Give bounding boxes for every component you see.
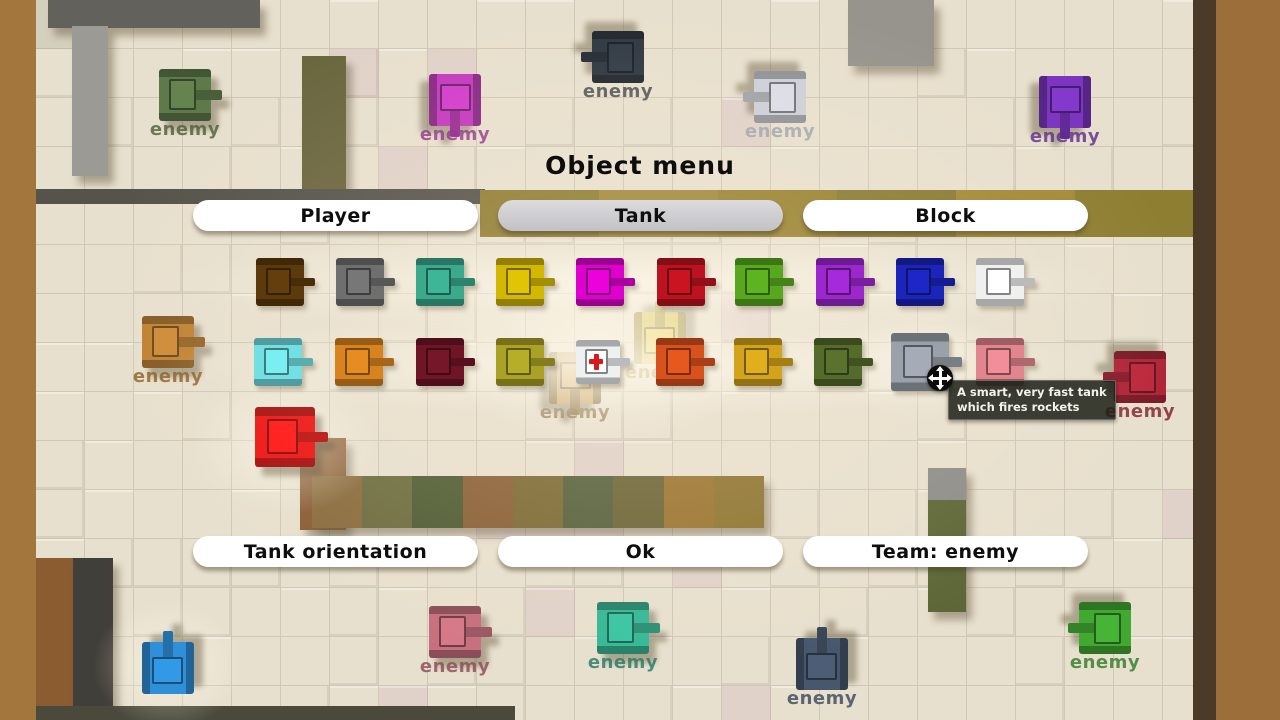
tank-option-orange-red[interactable] [656, 338, 704, 386]
floor-tile [330, 637, 379, 686]
tank-option-teal[interactable] [416, 258, 464, 306]
enemy-team-label: enemy [133, 366, 203, 387]
floor-tile [36, 245, 85, 294]
floor-tile [526, 98, 575, 147]
wall-right-border [1216, 0, 1280, 720]
floor-tile [183, 490, 232, 539]
floor-tile [673, 0, 722, 49]
floor-tile [232, 49, 281, 98]
tank-option-gray[interactable] [336, 258, 384, 306]
tank-option-medic[interactable] [576, 340, 620, 384]
floor-tile [967, 98, 1016, 147]
floor-tile [85, 245, 134, 294]
tank-option-dark-green[interactable] [814, 338, 862, 386]
floor-tile [526, 637, 575, 686]
tank-turret [440, 84, 470, 111]
tank-turret [745, 268, 770, 296]
floor-tile [183, 441, 232, 490]
floor-tile [330, 588, 379, 637]
wall-block [312, 476, 362, 528]
floor-tile [1016, 0, 1065, 49]
floor-tile [1065, 245, 1114, 294]
floor-tile [379, 588, 428, 637]
floor-tile [134, 245, 183, 294]
button-player[interactable]: Player [193, 200, 478, 231]
wall-blocks [312, 476, 764, 528]
tooltip: A smart, very fast tank which fires rock… [948, 380, 1116, 420]
map-tank-slate [796, 638, 848, 690]
floor-tile [722, 686, 771, 720]
wall-block [513, 476, 563, 528]
tank-turret [267, 419, 298, 454]
tank-turret [264, 348, 289, 376]
floor-tile [624, 98, 673, 147]
floor-tile [1114, 539, 1163, 588]
floor-tile [771, 441, 820, 490]
enemy-team-label: enemy [1030, 126, 1100, 147]
wall-bottom-left-dark [73, 558, 113, 720]
floor-tile [36, 343, 85, 392]
floor-tile [673, 686, 722, 720]
floor-tile [722, 0, 771, 49]
floor-tile [869, 637, 918, 686]
map-tank-teal [597, 602, 649, 654]
wall-block [412, 476, 462, 528]
tank-turret [666, 348, 691, 376]
floor-tile [526, 588, 575, 637]
tank-turret [986, 268, 1011, 296]
floor-tile [1016, 637, 1065, 686]
wall-top-mid-gray [848, 0, 934, 66]
tank-turret [806, 653, 836, 680]
tank-turret [607, 42, 634, 72]
floor-tile [36, 294, 85, 343]
floor-tile [183, 392, 232, 441]
floor-tile [1114, 686, 1163, 720]
enemy-team-label: enemy [787, 688, 857, 709]
floor-tile [918, 98, 967, 147]
enemy-team-label: enemy [583, 81, 653, 102]
floor-tile [1065, 441, 1114, 490]
floor-tile [1114, 294, 1163, 343]
wall-center-wall [312, 476, 764, 528]
floor-tile [477, 392, 526, 441]
floor-tile [869, 588, 918, 637]
floor-tile [1065, 686, 1114, 720]
tank-turret [607, 612, 634, 642]
floor-tile [85, 392, 134, 441]
wall-block [463, 476, 513, 528]
tank-turret [1129, 362, 1156, 392]
tank-turret [506, 268, 531, 296]
tank-option-white[interactable] [976, 258, 1024, 306]
map-tank-red [255, 407, 315, 467]
tank-option-pink[interactable] [976, 338, 1024, 386]
floor-tile [673, 49, 722, 98]
cursor-arrow-right [947, 374, 952, 382]
floor-tile [673, 588, 722, 637]
tank-turret [439, 616, 466, 646]
tank-turret [506, 348, 531, 376]
button-team[interactable]: Team: enemy [803, 536, 1088, 567]
tank-option-cyan[interactable] [254, 338, 302, 386]
floor-tile [673, 637, 722, 686]
floor-tile [967, 637, 1016, 686]
tooltip-line-2: which fires rockets [957, 400, 1107, 415]
map-tank-purple [1039, 76, 1091, 128]
tank-turret [152, 326, 179, 356]
tank-turret [824, 348, 849, 376]
map-tank-dark-green [159, 69, 211, 121]
tank-option-maroon[interactable] [416, 338, 464, 386]
wall-block [613, 476, 663, 528]
floor-tile [820, 588, 869, 637]
floor-tile [85, 343, 134, 392]
tank-option-olive[interactable] [496, 338, 544, 386]
tooltip-line-1: A smart, very fast tank [957, 385, 1107, 400]
floor-tile [771, 392, 820, 441]
floor-tile [379, 49, 428, 98]
floor-tile [967, 0, 1016, 49]
tank-turret [426, 268, 451, 296]
tank-option-yellow[interactable] [496, 258, 544, 306]
floor-tile [771, 588, 820, 637]
cursor-arrow-down [936, 385, 944, 390]
tank-turret [744, 348, 769, 376]
floor-tile [869, 392, 918, 441]
floor-tile [36, 490, 85, 539]
button-ok[interactable]: Ok [498, 536, 783, 567]
wall-left-border [0, 0, 36, 720]
map-tank-magenta [429, 74, 481, 126]
floor-tile [869, 98, 918, 147]
floor-tile [1114, 441, 1163, 490]
floor-tile [85, 490, 134, 539]
tank-option-gold[interactable] [734, 338, 782, 386]
floor-tile [183, 245, 232, 294]
cursor-arrow-left [928, 374, 933, 382]
floor-tile [1016, 588, 1065, 637]
floor-tile [869, 441, 918, 490]
wall-bottom-left-brown [35, 558, 73, 720]
enemy-team-label: enemy [588, 652, 658, 673]
wall-block [362, 476, 412, 528]
floor-tile [918, 686, 967, 720]
tank-option-brown[interactable] [256, 258, 304, 306]
tank-turret [986, 348, 1011, 376]
floor-tile [330, 392, 379, 441]
floor-tile [869, 686, 918, 720]
tank-option-purple[interactable] [816, 258, 864, 306]
tank-turret [667, 268, 692, 296]
floor-tile [1065, 294, 1114, 343]
map-tank-blue [142, 642, 194, 694]
game-stage: enemyenemyenemyenemyenemyenemyenemyenemy… [0, 0, 1280, 720]
floor-tile [1016, 490, 1065, 539]
tank-option-orange[interactable] [335, 338, 383, 386]
floor-tile [575, 686, 624, 720]
floor-tile [281, 588, 330, 637]
floor-tile [673, 392, 722, 441]
floor-tile [379, 392, 428, 441]
tank-turret [586, 268, 611, 296]
floor-tile [624, 392, 673, 441]
wall-block [664, 476, 714, 528]
button-block[interactable]: Block [803, 200, 1088, 231]
wall-right-wall-cap [928, 468, 966, 500]
tank-turret [346, 268, 371, 296]
tank-turret [906, 268, 931, 296]
floor-tile [36, 441, 85, 490]
floor-tile [967, 441, 1016, 490]
floor-tile [134, 490, 183, 539]
floor-tile [232, 98, 281, 147]
tank-option-red[interactable] [657, 258, 705, 306]
floor-tile [918, 637, 967, 686]
floor-tile [1016, 441, 1065, 490]
enemy-team-label: enemy [540, 402, 610, 423]
tank-turret [152, 657, 182, 684]
floor-tile [281, 0, 330, 49]
floor-tile [1114, 98, 1163, 147]
floor-tile [722, 637, 771, 686]
floor-tile [85, 294, 134, 343]
enemy-team-label: enemy [150, 119, 220, 140]
floor-tile [526, 49, 575, 98]
floor-tile [232, 637, 281, 686]
floor-tile [526, 0, 575, 49]
floor-tile [134, 588, 183, 637]
wall-block [714, 476, 764, 528]
floor-tile [134, 539, 183, 588]
map-tank-dark-navy [592, 31, 644, 83]
floor-tile [820, 490, 869, 539]
floor-tile [1016, 686, 1065, 720]
floor-tile [771, 490, 820, 539]
map-tank-pink [429, 606, 481, 658]
red-cross-icon [594, 354, 599, 370]
floor-tile [232, 490, 281, 539]
menu-title: Object menu [0, 151, 1280, 180]
wall-block [1075, 190, 1194, 237]
floor-tile [771, 0, 820, 49]
floor-tile [428, 392, 477, 441]
tank-option-blue[interactable] [896, 258, 944, 306]
tank-option-magenta[interactable] [576, 258, 624, 306]
floor-tile [1114, 490, 1163, 539]
tank-turret [345, 348, 370, 376]
cursor-arrow-up [936, 366, 944, 371]
wall-right-dark-strip [1193, 0, 1217, 720]
enemy-team-label: enemy [420, 656, 490, 677]
floor-tile [1114, 0, 1163, 49]
tank-turret [585, 349, 608, 375]
wall-top-left-strip [48, 0, 260, 28]
floor-tile [134, 441, 183, 490]
floor-tile [1114, 49, 1163, 98]
floor-tile [36, 392, 85, 441]
move-crosshair-cursor-icon [927, 365, 953, 391]
enemy-team-label: enemy [1070, 652, 1140, 673]
floor-tile [967, 490, 1016, 539]
floor-tile [820, 98, 869, 147]
floor-tile [477, 0, 526, 49]
button-tank-orientation[interactable]: Tank orientation [193, 536, 478, 567]
tank-option-green[interactable] [735, 258, 783, 306]
floor-tile [379, 0, 428, 49]
floor-tile [330, 0, 379, 49]
floor-tile [232, 588, 281, 637]
tank-turret [426, 348, 451, 376]
map-tank-dark-red [1114, 351, 1166, 403]
floor-tile [967, 49, 1016, 98]
map-tank-silver [754, 71, 806, 123]
map-tank-green [1079, 602, 1131, 654]
floor-tile [673, 98, 722, 147]
floor-tile [281, 637, 330, 686]
floor-tile [820, 441, 869, 490]
floor-tile [428, 0, 477, 49]
floor-tile [526, 686, 575, 720]
tank-turret [1094, 613, 1121, 643]
enemy-team-label: enemy [745, 121, 815, 142]
floor-tile [575, 98, 624, 147]
floor-tile [1065, 490, 1114, 539]
floor-tile [820, 392, 869, 441]
floor-tile [869, 490, 918, 539]
tank-turret [169, 79, 196, 109]
floor-tile [477, 49, 526, 98]
floor-tile [1065, 0, 1114, 49]
floor-tile [722, 392, 771, 441]
tank-turret [266, 268, 291, 296]
floor-tile [183, 588, 232, 637]
wall-block [563, 476, 613, 528]
enemy-team-label: enemy [420, 124, 490, 145]
tank-turret [826, 268, 851, 296]
wall-bottom-strip [35, 706, 515, 720]
floor-tile [1114, 245, 1163, 294]
floor-tile [134, 392, 183, 441]
floor-tile [967, 588, 1016, 637]
floor-tile [722, 588, 771, 637]
floor-tile [967, 686, 1016, 720]
floor-tile [624, 686, 673, 720]
tank-turret [769, 82, 796, 112]
floor-tile [85, 441, 134, 490]
button-tank[interactable]: Tank [498, 200, 783, 231]
tank-turret [1050, 86, 1080, 113]
map-tank-tan-orange [142, 316, 194, 368]
